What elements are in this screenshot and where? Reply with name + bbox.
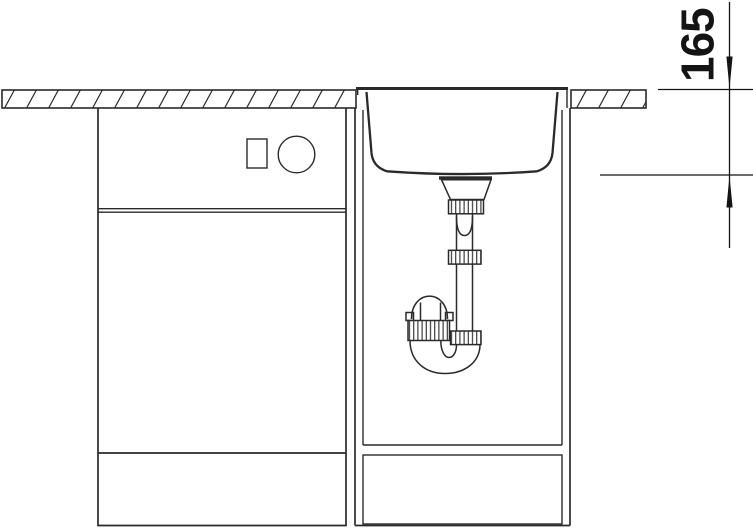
cabinet-front-circle-detail [278, 136, 315, 173]
worktop [2, 90, 646, 108]
p-trap-u-bend-outer [410, 341, 480, 374]
worktop-left-hatched [2, 90, 356, 108]
union-nut-trap-left [408, 321, 450, 341]
base-cabinet-left [98, 108, 346, 526]
diagram-page: 165 [0, 0, 753, 529]
sink-cabinet-plinth-panel [363, 455, 562, 524]
trap-riser-walls [421, 303, 441, 321]
trap-riser-cap-dome [412, 296, 448, 319]
dimension-value-label: 165 [672, 8, 724, 82]
sink-cabinet-inner-opening [363, 110, 562, 445]
dimension-arrow-down [726, 57, 732, 89]
installation-diagram-canvas: 165 [0, 0, 753, 529]
dimension-arrow-up [726, 176, 732, 208]
worktop-right-hatched [571, 90, 646, 108]
union-nut-top [449, 200, 484, 214]
base-cabinet-left-outline [98, 108, 346, 526]
drain-trap-assembly [406, 176, 492, 373]
standpipe-walls [457, 264, 473, 331]
cabinet-front-square-detail [247, 139, 267, 168]
union-nut-middle [449, 250, 482, 264]
sink-bowl-wall [367, 92, 558, 174]
union-nut-trap-right [451, 331, 482, 345]
tailpipe-inner-dome [457, 217, 473, 236]
inset-sink [356, 89, 568, 175]
drain-tailpiece-funnel [442, 180, 492, 200]
dimension-bowl-depth: 165 [600, 2, 753, 248]
